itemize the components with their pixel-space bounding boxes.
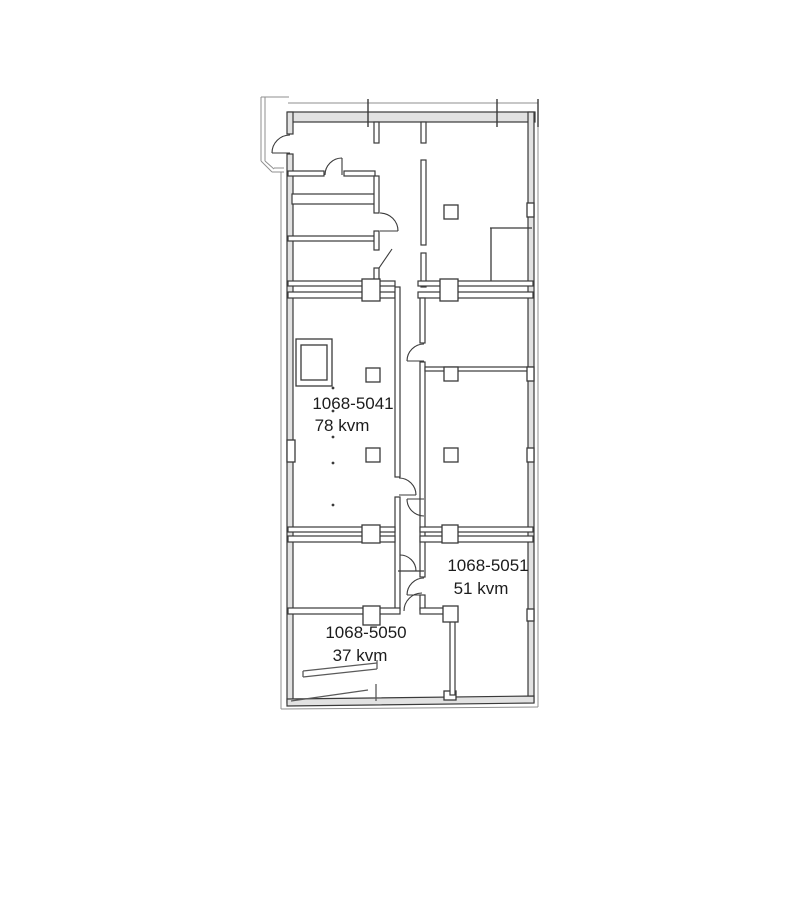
right-room-door-arc xyxy=(407,344,424,361)
entry-door-arc xyxy=(272,135,290,153)
room-area-5041: 78 kvm xyxy=(315,416,370,435)
room-id-5051: 1068-5051 xyxy=(447,556,528,575)
corridor-door-arc-e xyxy=(404,593,422,611)
wall-bottom xyxy=(287,696,534,706)
wall-stub-top-a xyxy=(374,122,379,143)
vestibule-door-arc xyxy=(325,158,342,175)
ramps xyxy=(291,660,377,701)
room-label-1068-5050: 1068-5050 37 kvm xyxy=(325,623,406,665)
shaft xyxy=(296,339,332,386)
wall-closet-band xyxy=(292,194,375,204)
room-area-5051: 51 kvm xyxy=(454,579,509,598)
wall-5050-top-a xyxy=(288,608,400,614)
wall-right-rooms-divider xyxy=(425,367,533,371)
wall-vestibule-b xyxy=(344,171,375,176)
corridor-door-arc-c xyxy=(400,555,416,571)
room-label-1068-5051: 1068-5051 51 kvm xyxy=(447,556,528,598)
diagonal-door-leaf xyxy=(379,249,392,268)
wall-corridor-left-up1 xyxy=(374,176,379,213)
corridor-wall-left-b xyxy=(395,497,400,610)
wall-5051-left xyxy=(450,614,455,695)
room-id-5050: 1068-5050 xyxy=(325,623,406,642)
wall-corridor-left-up2 xyxy=(374,231,379,250)
wall-freestanding xyxy=(421,160,426,245)
corridor-wall-left-a xyxy=(395,287,400,477)
wall-left-entry xyxy=(287,112,293,134)
room-label-1068-5041: 1068-5041 78 kvm xyxy=(312,394,393,435)
wc-door-arc xyxy=(380,213,398,231)
corridor-wall-right-a xyxy=(420,298,425,343)
room-id-5041: 1068-5041 xyxy=(312,394,393,413)
wall-top xyxy=(288,112,535,122)
corridor-door-arc-d xyxy=(407,578,424,595)
corridor-wall-right-b xyxy=(420,362,425,577)
wall-wc-divider xyxy=(288,236,378,241)
wall-stub-top-b xyxy=(421,122,426,143)
floor-plan-page: 1068-5041 78 kvm 1068-5051 51 kvm 1068-5… xyxy=(0,0,809,915)
wall-vestibule-a xyxy=(288,171,324,176)
room-area-5050: 37 kvm xyxy=(333,646,388,665)
floor-plan-drawing: 1068-5041 78 kvm 1068-5051 51 kvm 1068-5… xyxy=(0,0,809,915)
corridor-door-arc-a xyxy=(399,478,416,495)
